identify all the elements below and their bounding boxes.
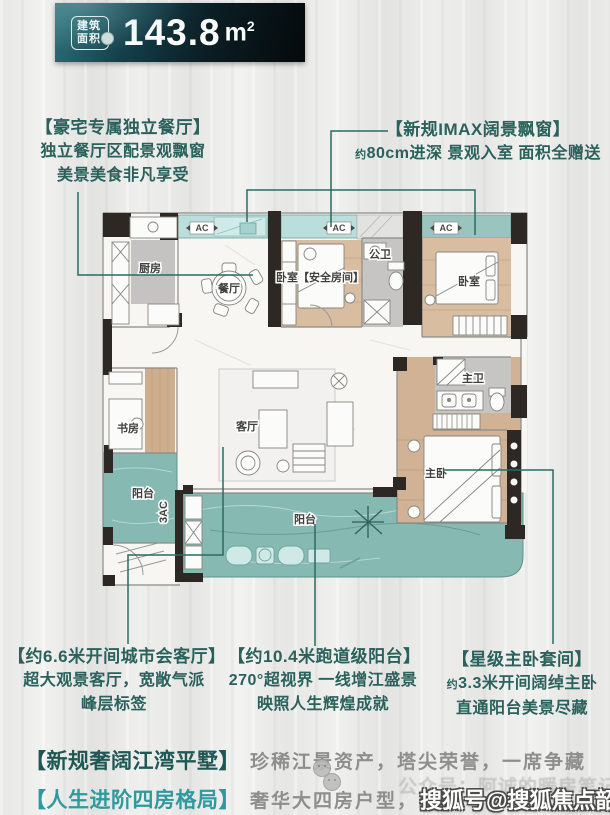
callout-living: 【约6.6米开间城市会客厅】 超大观景客厅，宽敞气派 峰层标签 [8, 645, 220, 717]
room-label-safe-bedroom: 卧室【安全房间】 [276, 270, 364, 284]
ac-label-1: AC [196, 223, 209, 233]
callout-master-title: 【星级主卧套间】 [438, 648, 606, 672]
callout-living-line1: 超大观景客厅，宽敞气派 [8, 669, 220, 693]
area-chip-line2: 面积 [77, 33, 101, 46]
footer-line-1: 【新规奢阔江湾平墅】珍稀江景资产，塔尖荣誉，一席争藏 [25, 745, 586, 775]
callout-balcony-line1: 270°超视界 一线增江盛景 [228, 669, 418, 693]
callout-dining-line1: 独立餐厅区配景观飘窗 [18, 140, 228, 164]
area-value: 143.8 [123, 12, 221, 54]
area-chip: 建筑 面积 [71, 16, 109, 50]
callout-living-line2: 峰层标签 [8, 693, 220, 717]
room-label-master-bath: 主卫 [462, 371, 484, 385]
area-unit: m2 [225, 18, 255, 47]
footer-tag-2: 【人生进阶四房格局】 [25, 789, 240, 812]
footer-tag-1: 【新规奢阔江湾平墅】 [25, 750, 240, 773]
room-label-bedroom: 卧室 [458, 274, 480, 288]
callout-dining-title: 【豪宅专属独立餐厅】 [18, 116, 228, 140]
room-label-living: 客厅 [235, 419, 258, 433]
room-label-dining: 餐厅 [217, 281, 240, 295]
room-label-study: 书房 [117, 421, 139, 435]
callout-master-suite: 【星级主卧套间】 约3.3米开间阔绰主卧 直通阳台美景尽藏 [438, 648, 606, 721]
callout-runway-balcony: 【约10.4米跑道级阳台】 270°超视界 一线增江盛景 映照人生辉煌成就 [228, 645, 418, 717]
emoji-icon-2 [323, 773, 341, 791]
ac-label-3: AC [440, 223, 453, 233]
callout-master-line1: 约3.3米开间阔绰主卧 [438, 672, 606, 697]
callout-dining: 【豪宅专属独立餐厅】 独立餐厅区配景观飘窗 美景美食非凡享受 [18, 116, 228, 188]
room-label-balcony-main: 阳台 [294, 512, 316, 526]
room-label-kitchen: 厨房 [139, 261, 161, 275]
room-label-3ac: 3AC [158, 501, 170, 523]
footer-text-1: 珍稀江景资产，塔尖荣誉，一席争藏 [250, 752, 586, 773]
room-label-public-bath: 公卫 [369, 248, 391, 261]
seal-icon [101, 32, 114, 45]
callout-living-title: 【约6.6米开间城市会客厅】 [8, 645, 220, 669]
page: { "badge": {"chip_top": "建筑", "chip_bott… [0, 0, 610, 815]
footer-line-2: 【人生进阶四房格局】奢华大四房户型，两梯 [25, 784, 460, 814]
callout-master-line2: 直通阳台美景尽藏 [438, 697, 606, 721]
callout-bay-line1: 约80cm进深 景观入室 面积全赠送 [348, 142, 608, 167]
ac-label-2: AC [333, 223, 346, 233]
area-chip-line1: 建筑 [77, 20, 101, 33]
callout-balcony-title: 【约10.4米跑道级阳台】 [228, 645, 418, 669]
callout-bay-title: 【新规IMAX阔景飘窗】 [348, 118, 608, 142]
callout-dining-line2: 美景美食非凡享受 [18, 164, 228, 188]
area-badge: 建筑 面积 143.8 m2 [55, 3, 305, 62]
room-label-master-bedroom: 主卧 [425, 466, 447, 480]
room-label-balcony-left: 阳台 [132, 486, 154, 500]
callout-bay-window: 【新规IMAX阔景飘窗】 约80cm进深 景观入室 面积全赠送 [348, 118, 608, 167]
sohu-watermark: 搜狐号@搜狐焦点韶关站 [420, 783, 610, 815]
callout-balcony-line2: 映照人生辉煌成就 [228, 693, 418, 717]
